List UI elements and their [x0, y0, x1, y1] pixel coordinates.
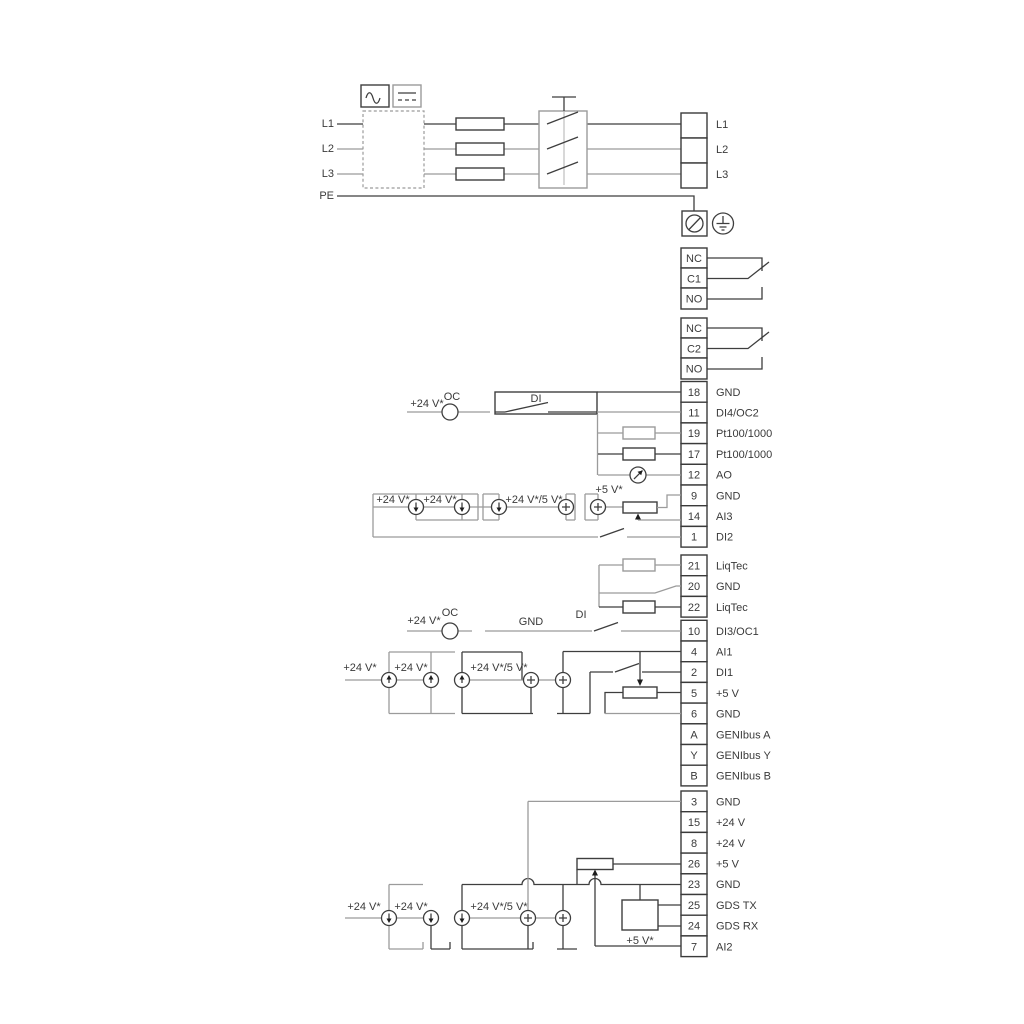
terminal-number: 23: [688, 879, 700, 891]
terminal-number: 21: [688, 561, 700, 573]
relay1-c1: C1: [687, 274, 701, 286]
terminal-label: Pt100/1000: [716, 449, 772, 461]
relay2-c2: C2: [687, 344, 701, 356]
liqtec-sensor-icon: [623, 601, 655, 613]
v24-label: +24 V*: [343, 662, 377, 674]
power-in-label-l2: L2: [322, 143, 334, 155]
ac-symbol-box: [361, 85, 389, 107]
di-label: DI: [531, 393, 542, 405]
power-input-section: L1 L2 L3 PE: [319, 85, 733, 236]
terminal-label: AI3: [716, 511, 733, 523]
terminal-number: 14: [688, 511, 700, 523]
v24-label: +24 V*: [410, 398, 444, 410]
fuse-l1: [456, 118, 504, 130]
relay2-block: NC C2 NO: [681, 318, 769, 379]
terminal-number: 3: [691, 796, 697, 808]
terminal-number: 17: [688, 449, 700, 461]
terminal-number: 10: [688, 626, 700, 638]
terminal-label: +24 V: [716, 838, 746, 850]
gnd-label: GND: [519, 616, 544, 628]
terminal-label: GND: [716, 796, 741, 808]
terminal-label: Pt100/1000: [716, 428, 772, 440]
relay2-contact-icon: [707, 328, 769, 369]
io-strip-1: 18 11 19 17 12 9 14 1 GND DI4/OC2 Pt100/…: [681, 382, 772, 548]
wiring-diagram: L1 L2 L3 PE L1: [0, 0, 1024, 1024]
oc-label: OC: [442, 607, 459, 619]
pt100-resistor-icon: [623, 448, 655, 460]
relay2-no: NO: [686, 364, 703, 376]
terminal-label: DI3/OC1: [716, 626, 759, 638]
terminal-label: +5 V: [716, 688, 740, 700]
v24-label: +24 V*: [347, 901, 381, 913]
terminal-label: GND: [716, 879, 741, 891]
di2-switch-icon: [600, 529, 624, 538]
terminal-label: GND: [716, 387, 741, 399]
terminal-number: 11: [688, 408, 699, 420]
terminal-label: GENIbus Y: [716, 750, 771, 762]
gds-tx-rx-wires: [658, 905, 681, 926]
v24-v5-label: +24 V*/5 V*: [505, 494, 563, 506]
io-strip-2: 10 4 2 5 6 A Y B DI3/OC1 AI1 DI1 +5 V GN…: [681, 620, 771, 786]
di3-switch-icon: [594, 623, 618, 632]
terminal-label: GDS TX: [716, 900, 757, 912]
terminal-label: GND: [716, 490, 741, 502]
v24-label: +24 V*: [394, 662, 428, 674]
terminal-number: 18: [688, 387, 700, 399]
relay2-nc: NC: [686, 323, 702, 335]
terminal-label: GENIbus B: [716, 771, 771, 783]
gnd23-rail: [462, 879, 681, 885]
dc-symbol-box: [393, 85, 421, 107]
di4-oc2-circuit: +24 V* OC DI: [407, 391, 681, 483]
terminal-number: 15: [688, 817, 700, 829]
potentiometer-icon: [577, 859, 613, 870]
terminal-number: 8: [691, 838, 697, 850]
terminal-number: 26: [688, 859, 700, 871]
relay1-block: NC C1 NO: [681, 248, 769, 309]
wiper-to-ai3: [638, 520, 681, 521]
liqtec-gnd-link: [599, 586, 681, 593]
terminal-label: L1: [716, 119, 728, 131]
terminal-label: GDS RX: [716, 921, 759, 933]
wiring-diagram-page: L1 L2 L3 PE L1: [0, 0, 1024, 1024]
pot-wiper-arrow: [635, 514, 641, 520]
terminal-label: LiqTec: [716, 602, 748, 614]
open-collector-icon: [442, 623, 458, 639]
terminal-label: DI2: [716, 532, 733, 544]
terminal-number: 12: [688, 470, 700, 482]
v24-label: +24 V*: [423, 494, 457, 506]
pot-wiper-arrow: [592, 870, 598, 876]
terminal-label: GND: [716, 709, 741, 721]
io-strip-3: 3 15 8 26 23 25 24 7 GND +24 V +24 V +5 …: [681, 791, 759, 957]
terminal-label: GND: [716, 581, 741, 593]
v24-label: +24 V*: [407, 615, 441, 627]
terminal-number: 5: [691, 688, 697, 700]
fuse-l2: [456, 143, 504, 155]
pt100-resistor-icon: [623, 427, 655, 439]
fuse-l3: [456, 168, 504, 180]
terminal-number: 20: [688, 581, 700, 593]
v24-label: +24 V*: [376, 494, 410, 506]
terminal-cell: [681, 138, 707, 163]
gnd3-wire: [528, 801, 681, 910]
terminal-label: L2: [716, 144, 728, 156]
main-switch-box: [539, 111, 587, 188]
terminal-label: AI2: [716, 941, 733, 953]
open-collector-icon: [442, 404, 458, 420]
terminal-number: 19: [688, 428, 700, 440]
ai2-gds-circuit: +24 V* +24 V* +24 V*/5 V* +5 V*: [345, 801, 681, 949]
terminal-number: 24: [688, 921, 700, 933]
relay1-nc: NC: [686, 253, 702, 265]
terminal-label: GENIbus A: [716, 729, 771, 741]
gds-sensor-box: [622, 900, 658, 930]
mains-terminal-block: L1 L2 L3: [681, 113, 728, 188]
terminal-number: 25: [688, 900, 700, 912]
v5-label: +5 V*: [595, 484, 623, 496]
filter-dashed-box: [363, 111, 424, 188]
terminal-cell: [681, 113, 707, 138]
relay1-no: NO: [686, 294, 703, 306]
terminal-label: +5 V: [716, 859, 740, 871]
terminal-label: AI1: [716, 647, 733, 659]
wire-pe: [337, 196, 694, 211]
power-in-label-l3: L3: [322, 168, 334, 180]
switch-handle: [552, 97, 576, 111]
terminal-cell: [681, 163, 707, 188]
terminal-label: L3: [716, 169, 728, 181]
terminal-number: Y: [690, 750, 698, 762]
power-in-label-l1: L1: [322, 118, 334, 130]
terminal-number: 9: [691, 490, 697, 502]
ai1-signal-line: [563, 652, 681, 681]
di-label: DI: [576, 609, 587, 621]
terminal-label: DI1: [716, 667, 733, 679]
terminal-number: A: [690, 729, 698, 741]
liqtec-sensor-icon: [623, 559, 655, 571]
v5-label: +5 V*: [626, 935, 654, 947]
terminal-number: 22: [688, 602, 700, 614]
terminal-number: 2: [691, 667, 697, 679]
ai3-di2-circuit: +24 V* +24 V* +24 V*/5 V* +5 V*: [373, 484, 681, 537]
terminal-label: LiqTec: [716, 561, 748, 573]
pot-to-gnd: [605, 693, 623, 714]
power-in-label-pe: PE: [319, 190, 334, 202]
terminal-number: 1: [691, 532, 697, 544]
pot-wiper-arrow: [637, 680, 643, 687]
potentiometer-icon: [623, 502, 657, 513]
di1-switch-icon: [590, 664, 681, 673]
v24-v5-label: +24 V*/5 V*: [470, 662, 528, 674]
terminal-label: AO: [716, 470, 732, 482]
v24-label: +24 V*: [394, 901, 428, 913]
relay1-contact-icon: [707, 258, 769, 299]
pot-to-gnd9: [657, 495, 681, 508]
v24-v5-label: +24 V*/5 V*: [470, 901, 528, 913]
oc-label: OC: [444, 391, 461, 403]
terminal-label: +24 V: [716, 817, 746, 829]
terminal-number: 6: [691, 709, 697, 721]
terminal-number: B: [690, 771, 697, 783]
terminal-number: 4: [691, 647, 697, 659]
ai1-di1-circuit: +24 V* +24 V* +24 V*/5 V*: [343, 652, 681, 714]
terminal-number: 7: [691, 941, 697, 953]
liqtec-strip: 21 20 22 LiqTec GND LiqTec: [599, 555, 748, 617]
potentiometer-icon: [623, 687, 657, 698]
terminal-label: DI4/OC2: [716, 408, 759, 420]
